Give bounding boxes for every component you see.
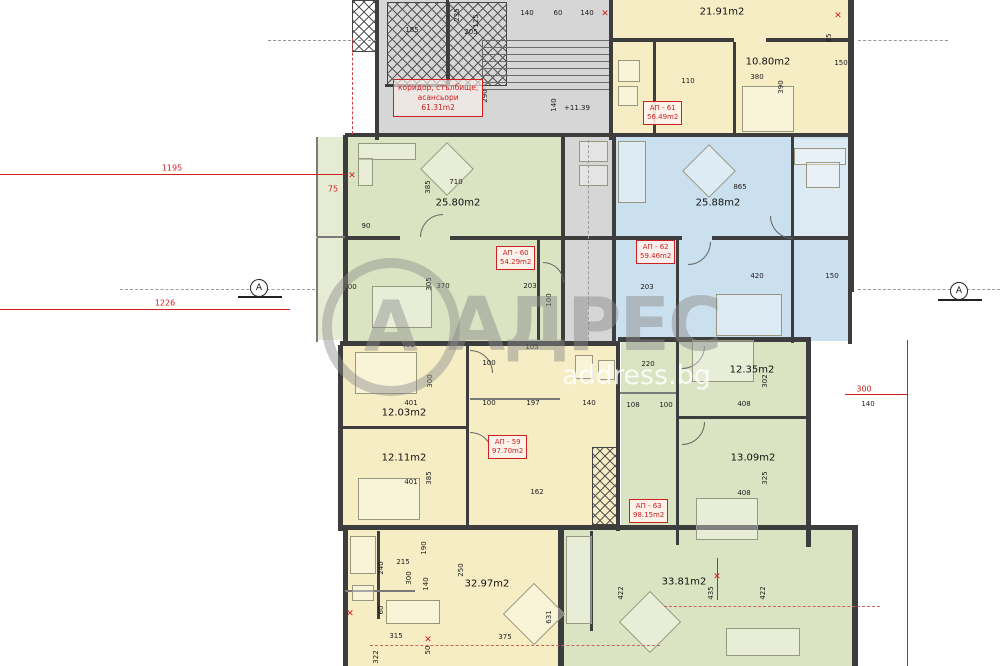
- bathroom-fixture-icon: [598, 360, 615, 380]
- red-dim-line-1226: [0, 309, 290, 310]
- apartment-tag: АП - 6398.15m2: [629, 499, 668, 523]
- kitchen-unit-icon: [386, 600, 440, 624]
- wall: [466, 345, 469, 525]
- room-area-label: 12.35m2: [730, 365, 775, 376]
- apartment-tag: АП - 6156.49m2: [643, 101, 682, 125]
- dimension-label: 408: [737, 489, 750, 497]
- sofa-icon: [358, 158, 373, 186]
- bathroom-fixture-icon: [618, 86, 638, 106]
- dimension-label: 50: [424, 646, 432, 655]
- red-dim-line-300: [845, 394, 908, 395]
- apartment-id: АП - 62: [640, 243, 671, 252]
- wall: [848, 0, 854, 292]
- wall: [679, 416, 809, 419]
- apartment-area: 54.29m2: [500, 258, 531, 267]
- corridor-label-line2: асансьори: [398, 93, 478, 103]
- apartment-id: АП - 60: [500, 249, 531, 258]
- apartment-area: 59.46m2: [640, 252, 671, 261]
- dimension-label: 125: [472, 14, 480, 27]
- dimension-label: 140: [580, 9, 593, 17]
- dimension-label: 385: [424, 180, 432, 193]
- bed-icon: [742, 86, 794, 132]
- red-dimension-label: 300: [856, 385, 871, 394]
- wall: [766, 38, 852, 42]
- dimension-label: 215: [396, 558, 409, 566]
- room-area-label: 21.91m2: [700, 7, 745, 18]
- dimension-label: 300: [426, 374, 434, 387]
- dimension-label: 370: [436, 282, 449, 290]
- elevator-shaft-hatch: [387, 2, 447, 86]
- dimension-label: 710: [449, 178, 462, 186]
- staircase-treads: [482, 40, 610, 93]
- room-area-label: 25.80m2: [436, 198, 481, 209]
- wall: [537, 240, 540, 340]
- desk-icon: [726, 628, 800, 656]
- bed-icon: [696, 498, 758, 540]
- wall: [446, 0, 449, 86]
- red-dimension-label: 1226: [155, 299, 175, 308]
- balcony-rail: [316, 137, 318, 237]
- dimension-label: 325: [761, 471, 769, 484]
- dimension-label: 401: [404, 399, 417, 407]
- red-marker-icon: ✕: [424, 635, 432, 645]
- wall: [609, 0, 613, 140]
- red-dashed-line: [352, 38, 353, 134]
- wall: [612, 137, 616, 343]
- dimension-label: 631: [545, 610, 553, 623]
- wall: [338, 345, 343, 531]
- dimension-label: 100: [659, 401, 672, 409]
- wall: [561, 137, 565, 343]
- kitchen-unit-icon: [566, 536, 592, 624]
- room-area-label: 25.88m2: [696, 198, 741, 209]
- reference-line: [268, 40, 376, 41]
- room-area-label: 12.11m2: [382, 453, 427, 464]
- room-area-label: 10.80m2: [746, 57, 791, 68]
- dimension-label: 140: [582, 399, 595, 407]
- dimension-label: 865: [733, 183, 746, 191]
- dimension-label: 322: [372, 650, 380, 663]
- dimension-label: 422: [617, 586, 625, 599]
- wall: [676, 341, 679, 545]
- dimension-label: 408: [737, 400, 750, 408]
- wall: [345, 133, 613, 137]
- dimension-label: 140: [422, 577, 430, 590]
- reference-line: [858, 40, 948, 41]
- bathroom-fixture-icon: [575, 355, 593, 379]
- dimension-label: 110: [681, 77, 694, 85]
- dimension-label: 420: [750, 272, 763, 280]
- apartment-id: АП - 63: [633, 502, 664, 511]
- wall: [616, 341, 620, 531]
- dimension-label: 150: [825, 272, 838, 280]
- dimension-label: 302: [761, 374, 769, 387]
- sink-icon: [352, 585, 374, 601]
- dimension-label: 105: [525, 343, 538, 351]
- corridor-label-line1: коридор, стълбище,: [398, 83, 478, 93]
- dimension-label: 100: [482, 359, 495, 367]
- dimension-label: 203: [640, 283, 653, 291]
- balcony-left-fill: [317, 137, 345, 340]
- wall: [343, 426, 469, 429]
- apartment-tag: АП - 5997.70m2: [488, 435, 527, 459]
- dimension-label: 203: [523, 282, 536, 290]
- dimension-label: 380: [750, 73, 763, 81]
- wall-hatch: [352, 0, 376, 52]
- wall: [676, 240, 679, 340]
- corridor-label-box: коридор, стълбище, асансьори 61.31m2: [393, 79, 483, 117]
- bed-icon: [372, 286, 432, 328]
- wall: [612, 38, 734, 42]
- corridor-label-area: 61.31m2: [398, 103, 478, 113]
- red-dimension-label: 1195: [162, 164, 182, 173]
- red-extension-line: [907, 340, 908, 666]
- dimension-label: 375: [498, 633, 511, 641]
- red-dimension-label: 75: [328, 185, 338, 194]
- red-dim-line-1195: [0, 174, 345, 175]
- dimension-label: 100: [482, 399, 495, 407]
- dimension-label: 197: [526, 399, 539, 407]
- dimension-label: 140: [861, 400, 874, 408]
- room-area-label: 32.97m2: [465, 579, 510, 590]
- wall: [345, 236, 400, 240]
- balcony-rail: [316, 238, 318, 342]
- dimension-label: 140: [550, 98, 558, 111]
- wall: [343, 528, 348, 666]
- balcony-rail: [317, 236, 345, 238]
- dimension-label: 108: [626, 401, 639, 409]
- centerline: [588, 140, 589, 340]
- room-area-label: 33.81m2: [662, 577, 707, 588]
- dimension-label: 250: [457, 563, 465, 576]
- wall: [791, 137, 794, 343]
- section-marker: А: [950, 282, 968, 300]
- wall: [340, 341, 618, 346]
- dimension-label: 85: [825, 34, 833, 43]
- kitchen-unit-icon: [579, 165, 608, 186]
- red-marker-icon: ✕: [713, 572, 721, 582]
- dimension-label: 390: [777, 80, 785, 93]
- dimension-label: 140: [520, 9, 533, 17]
- dimension-label: 205: [464, 28, 477, 36]
- red-dashed-line: [370, 645, 660, 646]
- red-marker-icon: ✕: [834, 11, 842, 21]
- dimension-label: 60: [377, 606, 385, 615]
- floor-plan-canvas: коридор, стълбище, асансьори 61.31m2 +11…: [0, 0, 1000, 666]
- bed-icon: [716, 294, 782, 336]
- dimension-label: 315: [389, 632, 402, 640]
- apartment-id: АП - 59: [492, 438, 523, 447]
- section-line: [858, 289, 1000, 290]
- bathroom-fixture-icon: [618, 60, 640, 82]
- dimension-label: 435: [707, 586, 715, 599]
- dimension-label: 162: [530, 488, 543, 496]
- dimension-label: 100: [545, 293, 553, 306]
- dimension-label: 60: [554, 9, 563, 17]
- dimension-label: 90: [362, 222, 371, 230]
- dimension-label: 385: [425, 471, 433, 484]
- apartment-area: 97.70m2: [492, 447, 523, 456]
- apartment-area: 56.49m2: [647, 113, 678, 122]
- dimension-label: 300: [405, 571, 413, 584]
- dimension-label: 220: [641, 360, 654, 368]
- red-marker-icon: ✕: [346, 609, 354, 619]
- wall: [806, 337, 811, 547]
- bed-icon: [355, 352, 417, 394]
- dimension-label: 150: [834, 59, 847, 67]
- apartment-tag: АП - 6259.46m2: [636, 240, 675, 264]
- bed-icon: [692, 340, 754, 382]
- wall: [612, 133, 852, 137]
- red-marker-icon: ✕: [601, 9, 609, 19]
- dimension-label: 190: [420, 541, 428, 554]
- dimension-label: 422: [759, 586, 767, 599]
- room-area-label: 13.09m2: [731, 453, 776, 464]
- wall: [375, 0, 379, 140]
- dimension-label: 305: [425, 277, 433, 290]
- partition: [620, 392, 676, 394]
- dimension-label: 401: [404, 478, 417, 486]
- apartment-area: 98.15m2: [633, 511, 664, 520]
- apartment-id: АП - 61: [647, 104, 678, 113]
- wall: [733, 42, 736, 135]
- wall: [848, 292, 852, 344]
- dimension-label: 185: [405, 26, 418, 34]
- kitchen-unit-icon: [618, 141, 646, 203]
- section-line: [120, 289, 315, 290]
- red-marker-icon: ✕: [348, 171, 356, 181]
- dimension-label: 235: [453, 8, 461, 21]
- section-marker-base: [938, 299, 982, 301]
- shower-icon: [350, 536, 376, 574]
- wall: [343, 525, 858, 530]
- dimension-label: 200: [343, 283, 356, 291]
- elevation-label: +11.39: [564, 104, 590, 112]
- section-marker: А: [250, 279, 268, 297]
- dimension-label: 240: [377, 561, 385, 574]
- room-area-label: 12.03m2: [382, 408, 427, 419]
- duct-hatch: [592, 447, 618, 525]
- dimension-label: 401: [401, 341, 414, 349]
- kitchen-unit-icon: [579, 141, 608, 162]
- balcony-table-icon: [806, 162, 840, 188]
- wall: [852, 528, 858, 666]
- section-marker-base: [238, 296, 282, 298]
- red-dashed-line: [664, 606, 880, 607]
- apartment-tag: АП - 6054.29m2: [496, 246, 535, 270]
